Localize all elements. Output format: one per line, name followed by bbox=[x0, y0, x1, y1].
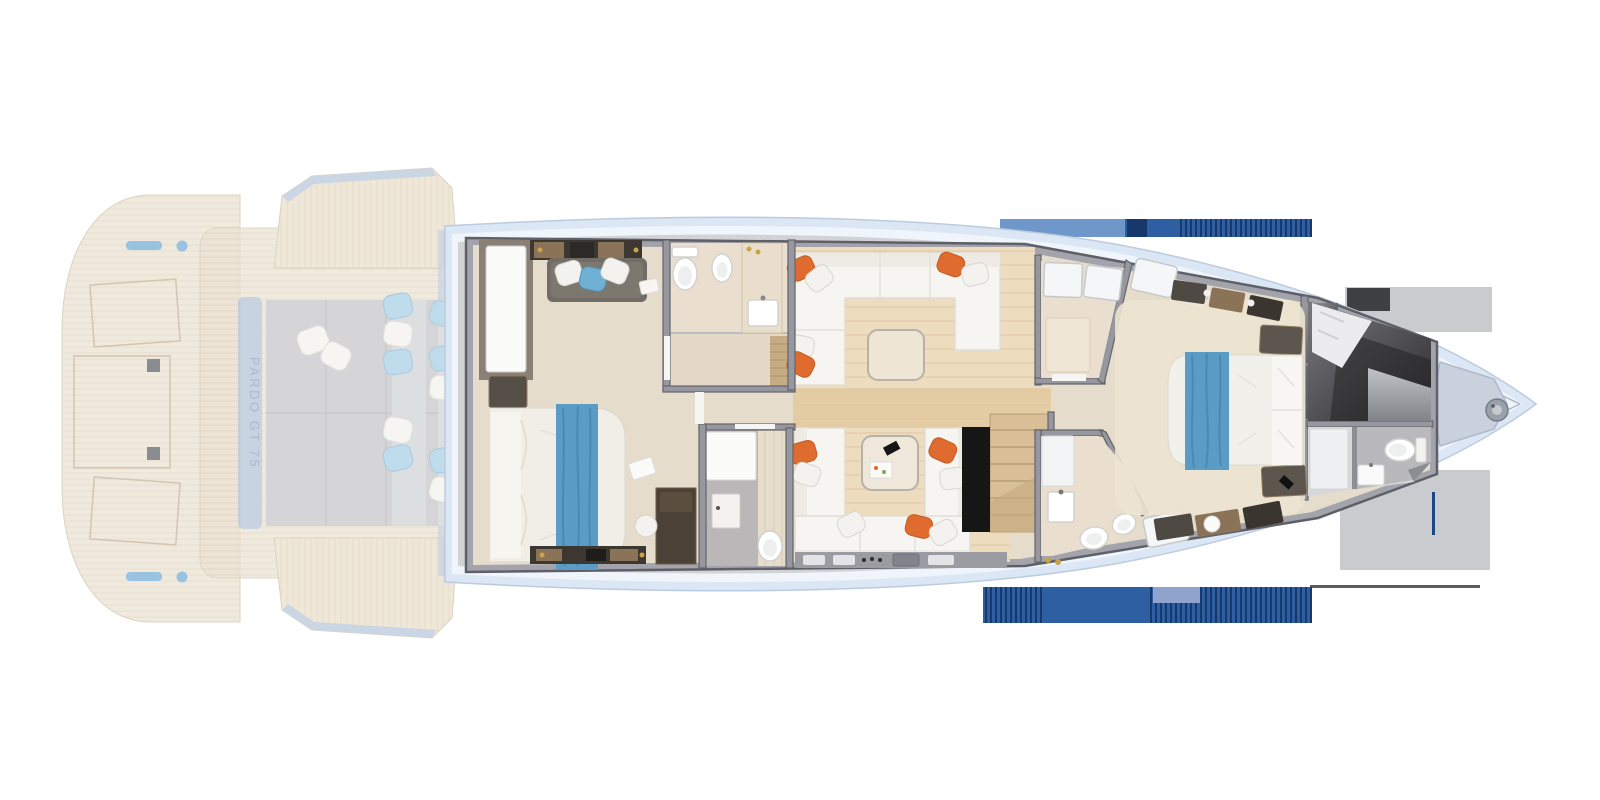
transom-model-label: PARDO GT 75 bbox=[247, 357, 262, 469]
dark-backdrop-block bbox=[1347, 288, 1390, 311]
lamp-icon bbox=[540, 553, 545, 558]
navy-line-artifact bbox=[1432, 492, 1435, 535]
master-wardrobe bbox=[486, 246, 526, 372]
faucet-icon bbox=[756, 250, 761, 255]
washbasin-counter bbox=[706, 432, 756, 480]
galley-knob bbox=[870, 557, 874, 561]
cabinet-segment bbox=[598, 242, 624, 258]
faucet-icon bbox=[716, 506, 720, 510]
windlass-pin bbox=[1491, 404, 1495, 408]
cleat-icon bbox=[126, 572, 162, 581]
stairwell-void bbox=[962, 427, 990, 532]
bed-pillows bbox=[1272, 357, 1302, 465]
magazines bbox=[870, 462, 892, 478]
cabinet-segment bbox=[586, 549, 606, 561]
faucet-icon bbox=[1059, 490, 1064, 495]
hull-window-louvers-bottom-left bbox=[983, 587, 1045, 623]
faucet-icon bbox=[1369, 463, 1373, 467]
galley-knob bbox=[862, 558, 866, 562]
wall bbox=[699, 424, 706, 568]
galley-handle bbox=[803, 555, 825, 565]
wall bbox=[1035, 255, 1041, 385]
door-opening bbox=[1052, 374, 1086, 381]
wall bbox=[788, 240, 795, 390]
door-opening bbox=[735, 424, 775, 429]
cabinet-segment bbox=[570, 242, 594, 258]
magazine-detail bbox=[882, 470, 886, 474]
skylight-panel bbox=[1043, 262, 1082, 297]
wall bbox=[1035, 430, 1103, 436]
backdrop-line bbox=[1310, 585, 1480, 588]
lamp-icon bbox=[640, 553, 645, 558]
door-opening bbox=[695, 392, 704, 424]
toilet-bowl bbox=[763, 539, 777, 557]
bidet-bowl bbox=[717, 262, 728, 278]
magazine-detail bbox=[874, 466, 878, 470]
lamp-icon bbox=[538, 248, 543, 253]
pillow bbox=[382, 348, 413, 376]
wall bbox=[1307, 421, 1433, 427]
bed-pillows bbox=[491, 412, 521, 558]
hull-window-louvers-top bbox=[1180, 219, 1312, 237]
cleat-icon bbox=[126, 241, 162, 250]
wall bbox=[786, 428, 793, 568]
toilet-tank bbox=[1416, 438, 1426, 462]
washbasin-icon bbox=[712, 494, 740, 528]
stool bbox=[635, 515, 657, 537]
shower-panel bbox=[1310, 429, 1348, 489]
deck-socket-icon bbox=[147, 447, 160, 460]
galley-sink bbox=[893, 554, 919, 566]
faucet-icon bbox=[1055, 559, 1061, 565]
washbasin-icon bbox=[1358, 465, 1384, 485]
aft-deck: PARDO GT 75 bbox=[200, 168, 472, 638]
lamp-icon bbox=[1204, 290, 1211, 297]
master-bathroom bbox=[670, 243, 788, 388]
door-opening bbox=[664, 336, 670, 380]
floorplan-svg: PARDO GT 75 bbox=[0, 0, 1600, 800]
faucet-icon bbox=[747, 247, 752, 252]
deck-fitting-icon bbox=[177, 241, 188, 252]
wall bbox=[1035, 430, 1041, 562]
hull-window-band-top-dark bbox=[1127, 219, 1147, 237]
wall bbox=[663, 386, 795, 392]
nightstand bbox=[1259, 325, 1302, 355]
lamp-icon bbox=[634, 248, 639, 253]
galley-knob bbox=[878, 558, 882, 562]
yacht-floorplan-canvas: PARDO GT 75 bbox=[0, 0, 1600, 800]
deck-socket-icon bbox=[147, 359, 160, 372]
faucet-icon bbox=[761, 296, 766, 301]
day-head bbox=[706, 430, 788, 566]
washbasin-icon bbox=[1048, 492, 1074, 522]
vanity-top bbox=[660, 492, 692, 512]
toilet-bowl bbox=[1389, 444, 1407, 457]
hull-window-band-bottom-light bbox=[1153, 587, 1200, 603]
lamp-icon bbox=[1248, 300, 1255, 307]
galley-handle bbox=[833, 555, 855, 565]
washbasin-icon bbox=[748, 300, 778, 326]
skylight-panel bbox=[1083, 265, 1123, 301]
wall bbox=[1352, 427, 1357, 489]
nightstand bbox=[489, 376, 527, 408]
glass-panel bbox=[1042, 436, 1074, 486]
toilet-tank bbox=[672, 247, 698, 257]
pillow bbox=[382, 320, 414, 348]
shower-tray bbox=[1046, 318, 1090, 372]
washbasin-icon bbox=[1204, 516, 1220, 532]
faucet-icon bbox=[1045, 557, 1051, 563]
galley-handle bbox=[928, 555, 954, 565]
bow-deck bbox=[1432, 362, 1508, 446]
toilet-bowl bbox=[678, 266, 692, 286]
salon-table bbox=[868, 330, 924, 380]
deck-fitting-icon bbox=[177, 572, 188, 583]
cabinet-segment bbox=[610, 549, 638, 561]
